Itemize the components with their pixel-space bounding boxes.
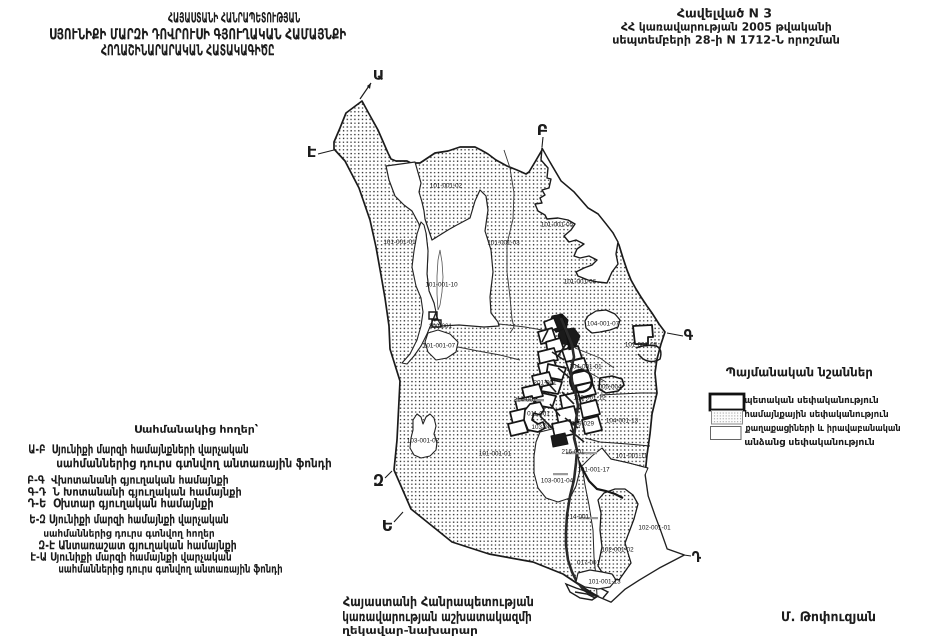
svg-text:104-001-07: 104-001-07 <box>587 321 620 328</box>
svg-text:101-001-03: 101-001-03 <box>487 240 520 247</box>
svg-text:017-001: 017-001 <box>577 560 601 567</box>
svg-text:200-001: 200-001 <box>429 323 453 330</box>
svg-text:104-001-01: 104-001-01 <box>569 364 602 371</box>
svg-text:214-001: 214-001 <box>566 514 590 521</box>
svg-text:102-001-01: 102-001-01 <box>638 525 671 532</box>
svg-text:101-001-05: 101-001-05 <box>541 222 574 229</box>
svg-text:101-001-01: 101-001-01 <box>479 451 512 458</box>
svg-text:101-001-01: 101-001-01 <box>383 239 416 246</box>
svg-text:101-001-13: 101-001-13 <box>588 579 621 586</box>
svg-text:005-029: 005-029 <box>571 421 595 428</box>
svg-text:101-001-17: 101-001-17 <box>577 467 610 474</box>
svg-text:101-001-06: 101-001-06 <box>564 279 597 286</box>
svg-text:101-001-07: 101-001-07 <box>423 343 456 350</box>
svg-text:005-004: 005-004 <box>598 384 622 391</box>
svg-text:103-001-04: 103-001-04 <box>541 478 574 485</box>
svg-text:101-001-10: 101-001-10 <box>425 282 458 289</box>
svg-text:011-001: 011-001 <box>527 411 550 418</box>
svg-text:104-001-13: 104-001-13 <box>606 418 639 425</box>
svg-text:201-001: 201-001 <box>533 380 557 387</box>
svg-text:103-001: 103-001 <box>531 424 555 431</box>
svg-text:102-001-02: 102-001-02 <box>601 547 634 554</box>
svg-text:102-001-12: 102-001-12 <box>573 395 606 402</box>
svg-text:101-001-11: 101-001-11 <box>616 453 648 460</box>
svg-text:103-001-02: 103-001-02 <box>407 438 440 445</box>
svg-text:101-001-08: 101-001-08 <box>625 342 658 349</box>
svg-text:101-001-02: 101-001-02 <box>430 183 463 190</box>
svg-text:216-001: 216-001 <box>561 449 585 456</box>
svg-text:214-001: 214-001 <box>513 397 537 404</box>
